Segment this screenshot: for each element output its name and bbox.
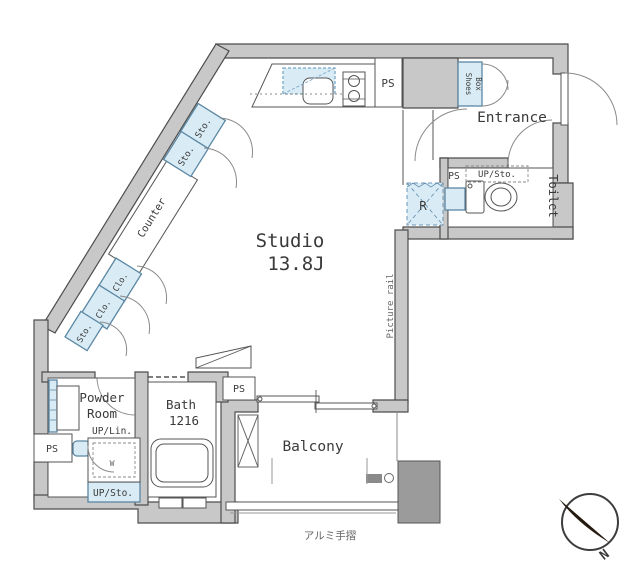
toilet-cabinet <box>445 188 465 210</box>
room-label-balcony: Balcony <box>282 439 343 455</box>
vanity-mirror <box>57 386 79 430</box>
shoes-door-arc-2 <box>482 80 508 106</box>
wall-entrance-toilet <box>440 158 508 168</box>
balcony-ticks <box>272 458 367 484</box>
room-size-studio: 13.8J <box>267 253 324 275</box>
wall-diagonal <box>42 44 229 333</box>
ps-label-left: PS <box>46 444 58 455</box>
toilet-handle <box>468 184 472 188</box>
window-roller-1 <box>258 397 262 401</box>
room-label-powder-1: Powder <box>79 390 125 405</box>
closet-door-arc-2 <box>204 148 237 188</box>
front-door-panel <box>561 73 568 125</box>
toilet-door-arc <box>508 120 552 164</box>
uplin-label: UP/Lin. <box>92 426 132 437</box>
stove-burner-2 <box>349 91 360 102</box>
vanity-strip <box>49 380 57 432</box>
balcony-drain-grate <box>366 474 382 483</box>
compass-circle <box>562 494 618 550</box>
stove-burner-1 <box>349 76 360 87</box>
upsto-label-powder: UP/Sto. <box>93 488 133 499</box>
balcony-drain-cap <box>385 474 394 483</box>
powder-basin <box>73 441 90 456</box>
shoes-box-label-1: Shoes <box>464 73 473 96</box>
room-label-studio: Studio <box>256 230 325 252</box>
window-panel-2 <box>315 403 377 409</box>
closet-door-arc-1 <box>220 118 253 158</box>
room-label-powder-2: Room <box>87 406 117 421</box>
wall-toilet-bottom <box>403 227 573 239</box>
bath-window-1 <box>159 498 182 508</box>
wall-left-lower <box>34 462 48 500</box>
floor-plan: N Studio 13.8J Entrance Balcony Bath 121… <box>0 0 640 569</box>
bath-window-2 <box>183 498 206 508</box>
wall-studio-right <box>395 230 408 403</box>
window-roller-2 <box>372 404 376 408</box>
picture-rail-label: Picture rail <box>386 273 396 338</box>
closet-door-arc-3 <box>137 266 167 304</box>
room-label-bath: Bath <box>166 397 196 412</box>
floor-plan-page: N Studio 13.8J Entrance Balcony Bath 121… <box>0 0 640 569</box>
wall-kitchen-entrance <box>403 58 458 108</box>
outside-block <box>398 461 440 523</box>
handrail-label: アルミ手摺 <box>304 529 356 542</box>
compass: N <box>559 494 618 564</box>
studio-door-arc <box>415 109 467 161</box>
wall-balcony-top-right <box>373 400 408 412</box>
bathtub-inner <box>156 444 208 482</box>
upsto-label-toilet: UP/Sto. <box>478 170 516 180</box>
washer-label: W <box>110 459 115 468</box>
window-panel-1 <box>257 396 319 402</box>
front-door-arc <box>565 73 617 125</box>
room-label-toilet: Toilet <box>546 174 560 217</box>
room-size-bath: 1216 <box>169 413 199 428</box>
toilet-bowl-inner <box>491 188 511 206</box>
ps-label-kitchen: PS <box>381 77 394 90</box>
ps-label-toilet: PS <box>448 171 460 182</box>
shoes-door-arc-1 <box>482 64 508 90</box>
refrigerator-label: R <box>419 198 427 213</box>
ps-label-bath: PS <box>233 384 245 395</box>
room-label-entrance: Entrance <box>477 110 547 126</box>
shoes-box-label-2: Box <box>474 77 483 91</box>
balcony-rail <box>226 502 400 510</box>
compass-north-label: N <box>597 547 613 564</box>
